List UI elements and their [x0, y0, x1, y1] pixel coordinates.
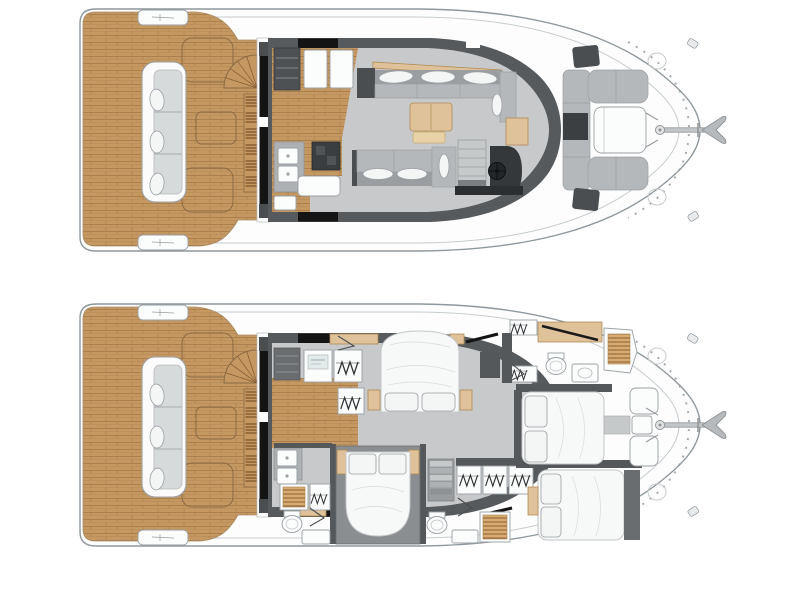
sofa-pillow	[363, 169, 393, 180]
cabin-wall	[516, 384, 612, 392]
storage-locker	[632, 416, 652, 434]
cabin-wall	[420, 444, 426, 544]
wardrobe	[310, 484, 330, 510]
bathroom-wall	[274, 443, 332, 448]
bed-pillow	[422, 393, 455, 411]
aft-galley-cabinet	[274, 196, 296, 210]
stairs-down[interactable]	[428, 459, 454, 501]
nightstand	[368, 390, 380, 410]
bathroom-sink	[572, 364, 598, 382]
port-forward-bed	[528, 470, 640, 540]
toilet-icon	[546, 353, 566, 375]
aft-galley-cabinet	[298, 176, 340, 196]
sofa-pillow	[397, 169, 427, 180]
lounge-dark-insert	[563, 113, 588, 140]
fridge-box	[304, 50, 327, 88]
wardrobe	[483, 466, 507, 494]
wardrobe	[457, 466, 481, 494]
aft-cockpit	[83, 10, 271, 250]
sun-hatch	[572, 188, 600, 212]
bed-pillow	[525, 431, 547, 462]
deck-ring	[648, 53, 666, 69]
bed-pillow	[379, 454, 406, 474]
washer-icon	[308, 355, 328, 369]
yacht-deck-plans	[0, 0, 800, 600]
cabin-wall	[514, 390, 522, 462]
l-sofa-seat	[375, 84, 502, 98]
steering-wheel-icon[interactable]	[489, 163, 506, 180]
fridge-box	[330, 50, 353, 88]
galley-drawer-cabinet	[274, 48, 300, 90]
sink-counter	[452, 530, 478, 543]
sofa-pillow	[421, 71, 455, 83]
toilet-icon	[427, 512, 447, 534]
cabinet-block	[480, 352, 500, 378]
bed-head-panel	[624, 470, 640, 540]
companionway-steps[interactable]	[458, 140, 486, 186]
wardrobe	[510, 320, 537, 335]
sun-hatch	[572, 45, 600, 69]
nightstand	[460, 390, 472, 410]
washing-machine	[304, 350, 332, 382]
main-deck-plan	[80, 9, 726, 251]
step-pad	[604, 416, 630, 434]
wardrobe	[334, 350, 362, 382]
wardrobe	[338, 388, 364, 414]
bed-pillow	[385, 393, 418, 411]
nightstand	[528, 487, 538, 515]
toilet-icon	[282, 511, 302, 533]
lounge-seat	[588, 70, 648, 103]
storage-locker	[630, 388, 658, 414]
facing-sofa-seat	[357, 150, 432, 172]
aft-cockpit	[83, 305, 271, 545]
shower-icon	[280, 484, 308, 510]
bed-pillow	[541, 507, 561, 537]
aft-cabin	[330, 444, 426, 544]
storage-locker	[630, 436, 658, 466]
side-deck-door-gap[interactable]	[466, 38, 480, 48]
bathroom-wall	[502, 333, 512, 383]
cabin-wall	[330, 444, 336, 544]
bed-pillow	[541, 474, 561, 504]
deck-ring	[648, 348, 666, 364]
sofa-pillow	[439, 154, 449, 178]
salon-bench	[413, 132, 445, 143]
lower-deck-plan	[80, 304, 726, 546]
sink-counter	[302, 530, 330, 544]
lounge-seat	[588, 157, 648, 190]
starboard-forward-bed	[522, 392, 604, 464]
sofa-corner-block	[357, 68, 375, 98]
shower-icon	[604, 328, 637, 373]
aft-wall-accent	[298, 39, 338, 49]
bed-pillow	[349, 454, 376, 474]
foredeck-table	[594, 107, 646, 153]
helm-footrest	[455, 186, 523, 195]
bed-pillow	[525, 396, 547, 427]
chart-table	[506, 118, 528, 145]
aft-wall-accent	[298, 212, 338, 222]
sofa-end-column	[500, 72, 516, 122]
armrest-pillow	[492, 94, 502, 116]
shower-icon	[480, 512, 510, 542]
wall-wood-trim	[330, 334, 378, 344]
